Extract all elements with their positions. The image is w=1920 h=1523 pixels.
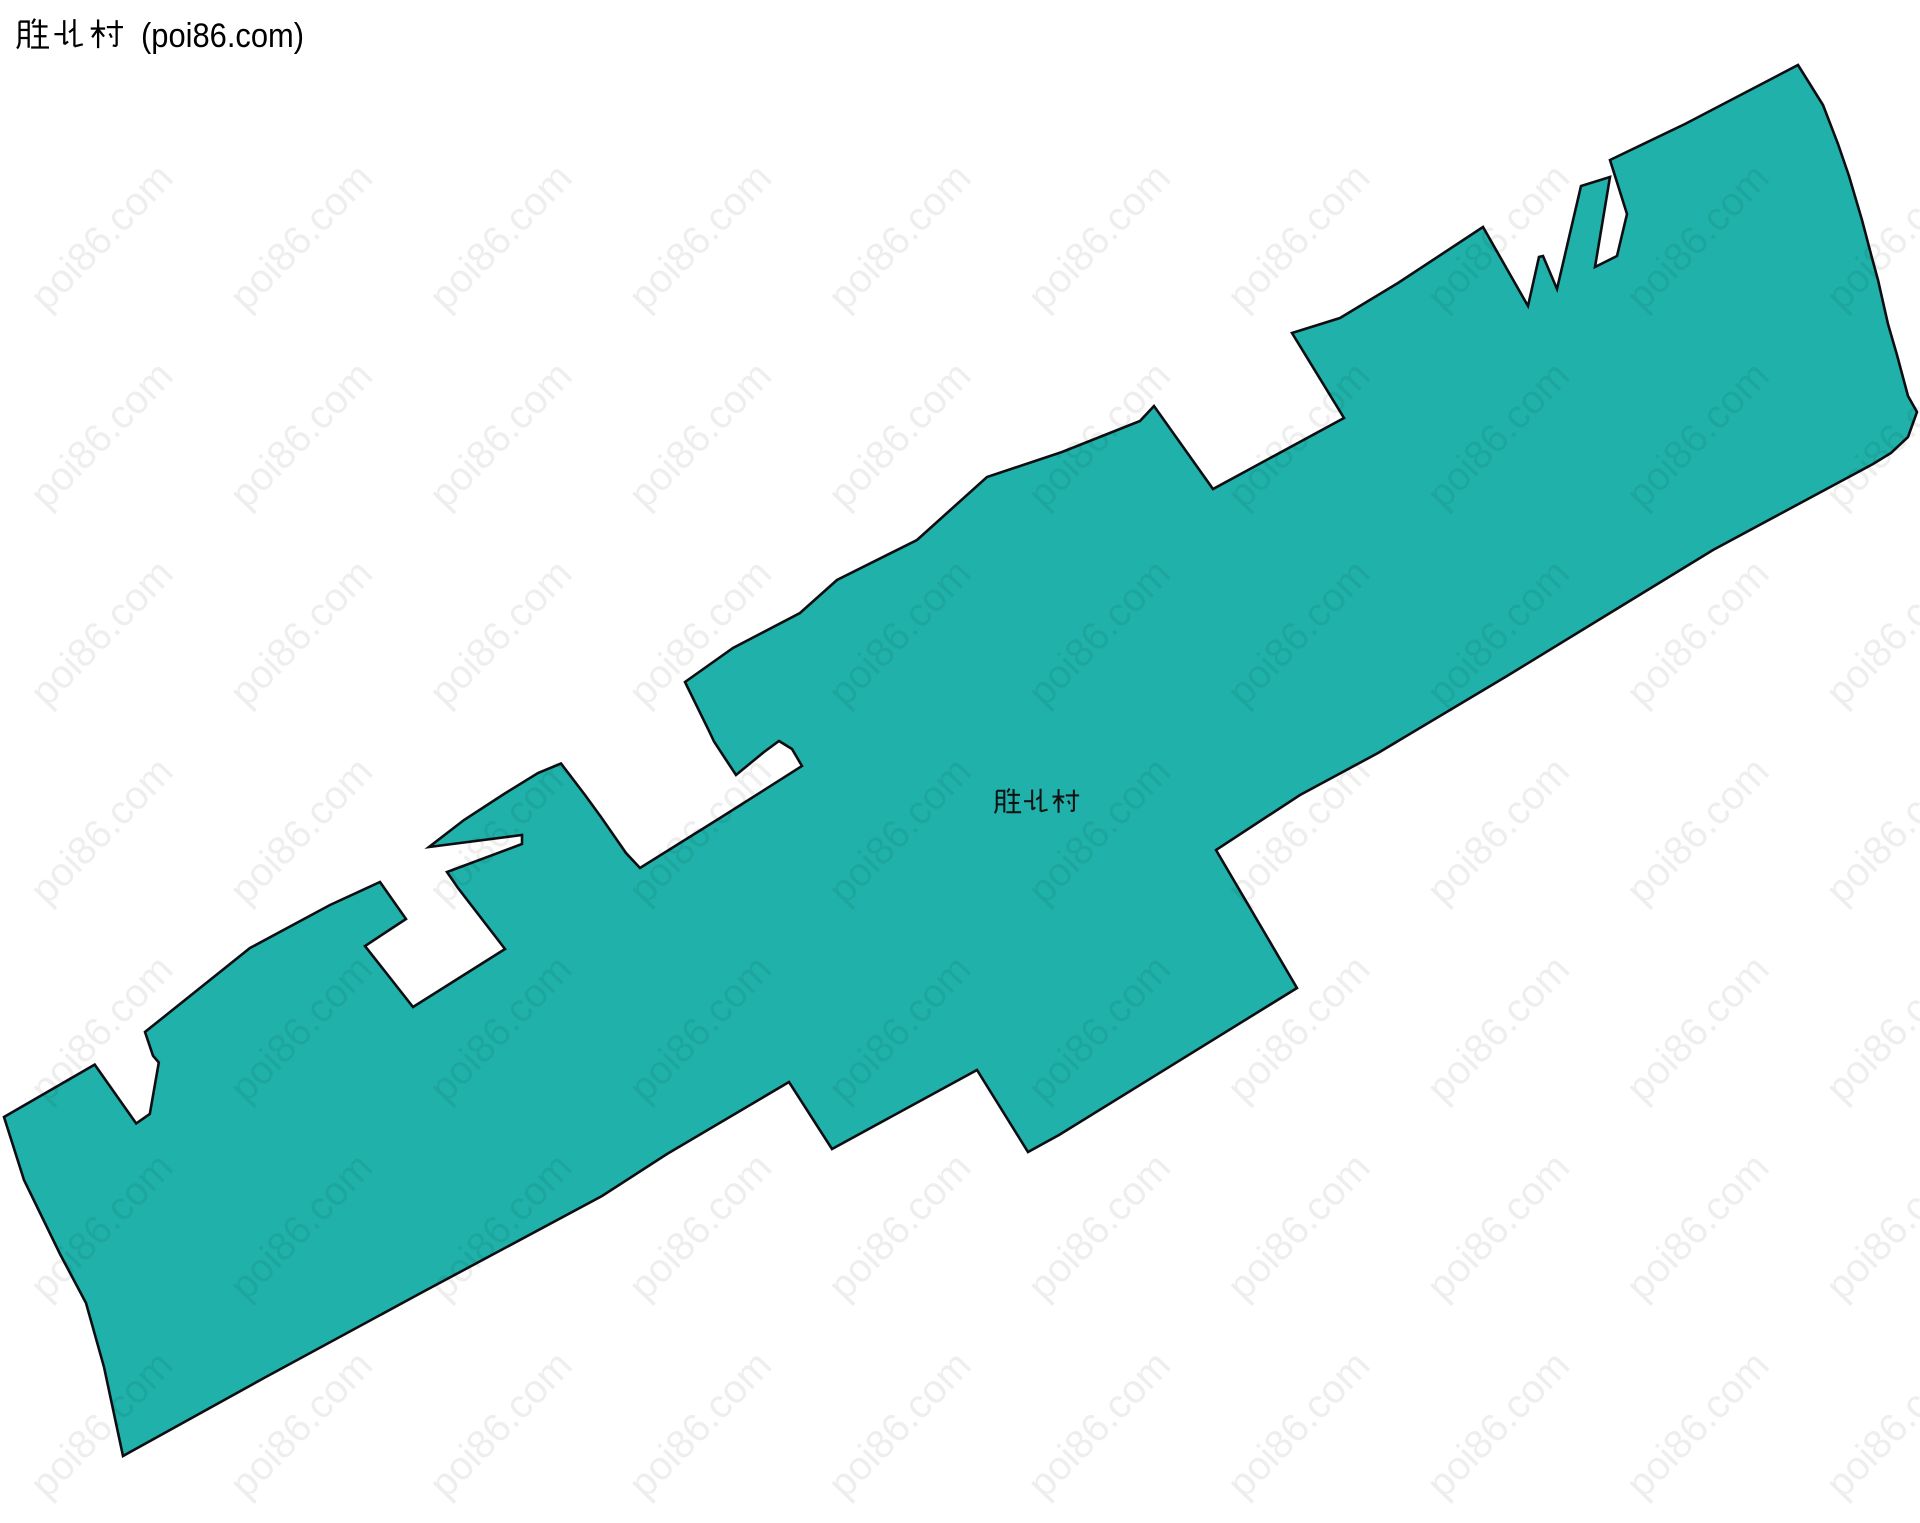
svg-text:poi86.com: poi86.com	[1618, 947, 1778, 1110]
svg-text:poi86.com: poi86.com	[1418, 1145, 1578, 1308]
svg-text:poi86.com: poi86.com	[1418, 947, 1578, 1110]
svg-text:poi86.com: poi86.com	[221, 749, 381, 912]
svg-text:poi86.com: poi86.com	[22, 156, 182, 319]
svg-text:poi86.com: poi86.com	[1817, 749, 1920, 912]
svg-text:poi86.com: poi86.com	[1817, 551, 1920, 714]
svg-text:poi86.com: poi86.com	[1418, 1343, 1578, 1506]
svg-text:poi86.com: poi86.com	[1618, 749, 1778, 912]
svg-text:poi86.com: poi86.com	[421, 156, 581, 319]
svg-text:poi86.com: poi86.com	[620, 1343, 780, 1506]
svg-text:poi86.com: poi86.com	[820, 156, 980, 319]
svg-text:poi86.com: poi86.com	[22, 353, 182, 516]
svg-text:poi86.com: poi86.com	[1618, 1343, 1778, 1506]
svg-text:poi86.com: poi86.com	[221, 353, 381, 516]
svg-text:poi86.com: poi86.com	[1817, 1343, 1920, 1506]
svg-text:poi86.com: poi86.com	[22, 749, 182, 912]
svg-text:poi86.com: poi86.com	[620, 353, 780, 516]
svg-text:poi86.com: poi86.com	[1817, 1145, 1920, 1308]
svg-text:poi86.com: poi86.com	[1618, 1145, 1778, 1308]
svg-text:poi86.com: poi86.com	[620, 156, 780, 319]
svg-text:poi86.com: poi86.com	[1019, 1145, 1179, 1308]
svg-text:poi86.com: poi86.com	[421, 353, 581, 516]
svg-text:poi86.com: poi86.com	[1219, 1145, 1379, 1308]
svg-text:poi86.com: poi86.com	[1817, 947, 1920, 1110]
svg-text:poi86.com: poi86.com	[221, 156, 381, 319]
svg-text:poi86.com: poi86.com	[22, 551, 182, 714]
svg-text:poi86.com: poi86.com	[820, 1145, 980, 1308]
svg-text:poi86.com: poi86.com	[1019, 1343, 1179, 1506]
svg-text:(poi86.com): (poi86.com)	[141, 17, 304, 55]
svg-text:poi86.com: poi86.com	[1219, 1343, 1379, 1506]
svg-text:poi86.com: poi86.com	[421, 551, 581, 714]
svg-text:poi86.com: poi86.com	[1019, 156, 1179, 319]
svg-text:poi86.com: poi86.com	[1219, 156, 1379, 319]
svg-text:poi86.com: poi86.com	[1418, 749, 1578, 912]
svg-text:poi86.com: poi86.com	[820, 1343, 980, 1506]
svg-text:poi86.com: poi86.com	[820, 353, 980, 516]
svg-text:poi86.com: poi86.com	[421, 1343, 581, 1506]
svg-text:poi86.com: poi86.com	[221, 551, 381, 714]
